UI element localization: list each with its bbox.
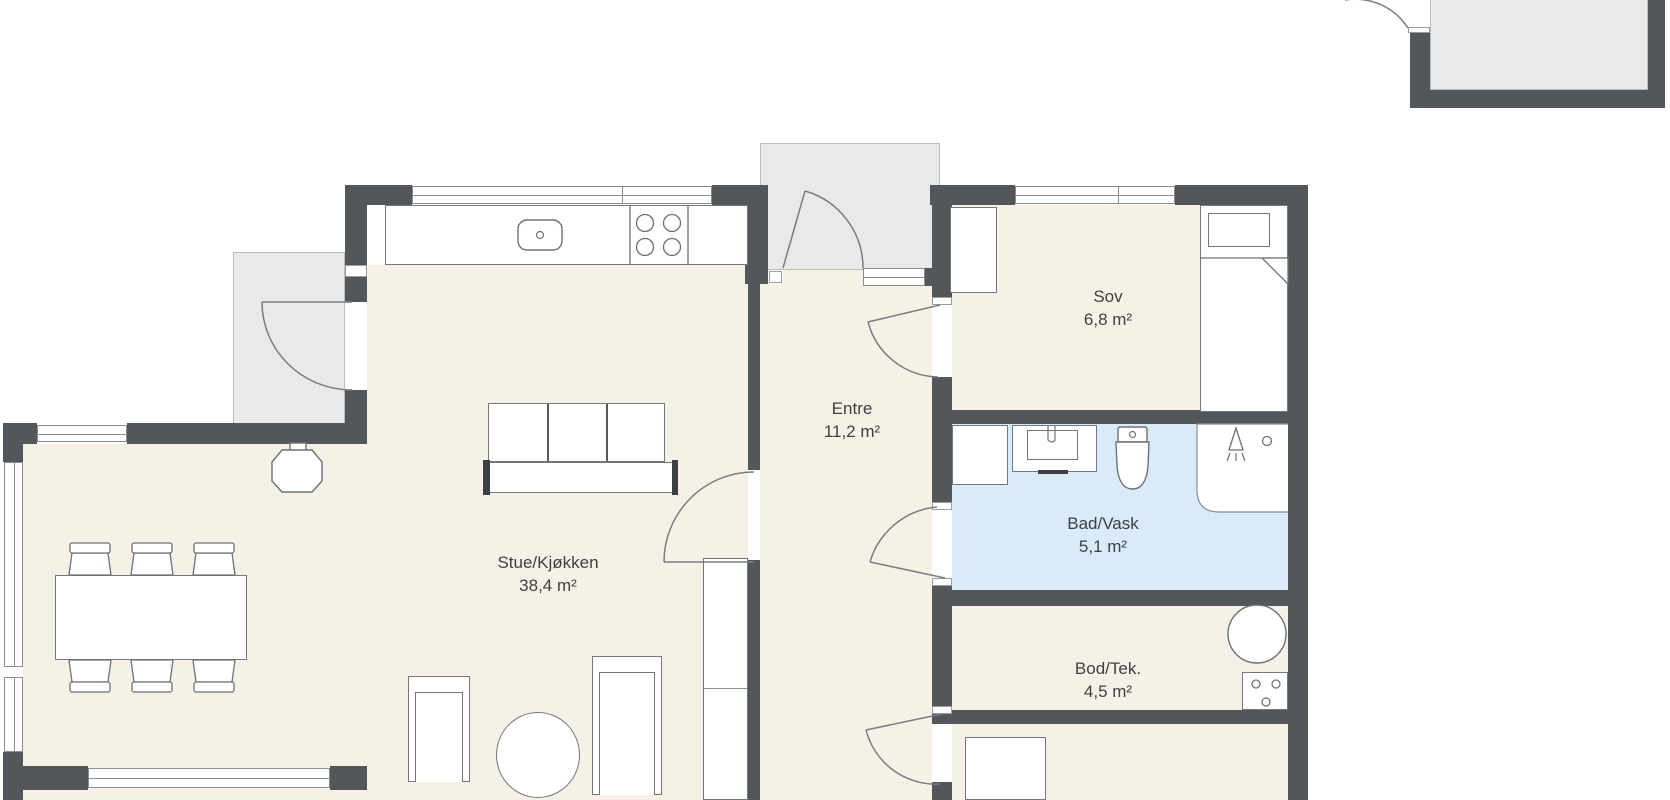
window [4, 677, 23, 752]
room-area: 5,1 m² [1067, 535, 1139, 558]
room-name: Bad/Vask [1067, 512, 1139, 535]
sofa-armrest [483, 460, 490, 495]
kitchen-counter [385, 205, 748, 265]
dining-table [55, 575, 247, 660]
wall [748, 284, 760, 470]
washing-machine [952, 425, 1008, 485]
floor-plan: Stue/Kjøkken 38,4 m² Entre 11,2 m² Sov 6… [0, 0, 1670, 800]
room-name: Bod/Tek. [1075, 657, 1141, 680]
wall [932, 187, 952, 297]
armchair-seat [599, 672, 655, 795]
entre-floor [760, 284, 932, 800]
door-arc-terrace [1345, 0, 1408, 28]
window [88, 768, 330, 788]
wall [712, 185, 768, 205]
terrace-top-right [1430, 0, 1648, 90]
room-area: 38,4 m² [497, 574, 598, 597]
sofa-seat [486, 462, 678, 493]
sofa-cushion-divider [547, 404, 549, 461]
vanity-handle [1038, 470, 1068, 474]
wardrobe [703, 558, 748, 800]
sink-basin [1027, 430, 1078, 460]
wall [745, 205, 768, 284]
window [412, 186, 712, 204]
window [4, 462, 23, 667]
entre-door-opening-floor [783, 270, 863, 286]
electrical-panel [1242, 672, 1288, 710]
wall [748, 560, 760, 800]
door-threshold [932, 502, 952, 510]
window-divider [1118, 186, 1119, 204]
door-threshold [769, 271, 782, 283]
window-divider [622, 186, 623, 204]
wall [345, 205, 367, 302]
room-name: Stue/Kjøkken [497, 551, 598, 574]
door-threshold [345, 265, 367, 277]
room-name: Sov [1084, 285, 1132, 308]
door-threshold [932, 297, 952, 305]
wall [345, 390, 367, 444]
bed-pillow [1208, 213, 1270, 247]
room-area: 6,8 m² [1084, 308, 1132, 331]
closet [950, 207, 997, 293]
sofa-back-cushions [488, 403, 665, 462]
room-label-bod: Bod/Tek. 4,5 m² [1075, 657, 1141, 703]
sofa-cushion-divider [606, 404, 608, 461]
room-name: Entre [824, 397, 880, 420]
door-threshold [932, 578, 952, 586]
wall [932, 782, 952, 800]
wall [932, 410, 1290, 424]
room-label-entre: Entre 11,2 m² [824, 397, 880, 443]
sidelight-window [863, 268, 925, 286]
wall [932, 377, 952, 410]
window [1015, 186, 1175, 204]
wall [345, 185, 412, 205]
room-label-bad: Bad/Vask 5,1 m² [1067, 512, 1139, 558]
wall [1648, 0, 1665, 108]
entrance-porch [760, 143, 940, 270]
wall [1288, 185, 1308, 800]
patio-left [233, 252, 345, 424]
room-area: 4,5 m² [1075, 680, 1141, 703]
wall [1410, 90, 1665, 108]
wall [932, 710, 1288, 724]
wardrobe-divider [704, 688, 747, 689]
wall [932, 590, 1288, 606]
wall [3, 423, 37, 444]
room-area: 11,2 m² [824, 420, 880, 443]
wall [3, 444, 23, 462]
door-threshold [932, 706, 952, 714]
room-label-sov: Sov 6,8 m² [1084, 285, 1132, 331]
wall [3, 766, 88, 790]
bottom-room-fixture [965, 737, 1046, 800]
room-label-stue: Stue/Kjøkken 38,4 m² [497, 551, 598, 597]
armchair-seat [415, 692, 463, 782]
wall [127, 423, 345, 444]
window [37, 425, 127, 442]
sofa-armrest [672, 460, 678, 495]
door-threshold [1408, 27, 1430, 33]
wall [330, 766, 367, 790]
coffee-table [496, 712, 580, 798]
wall [932, 424, 952, 502]
